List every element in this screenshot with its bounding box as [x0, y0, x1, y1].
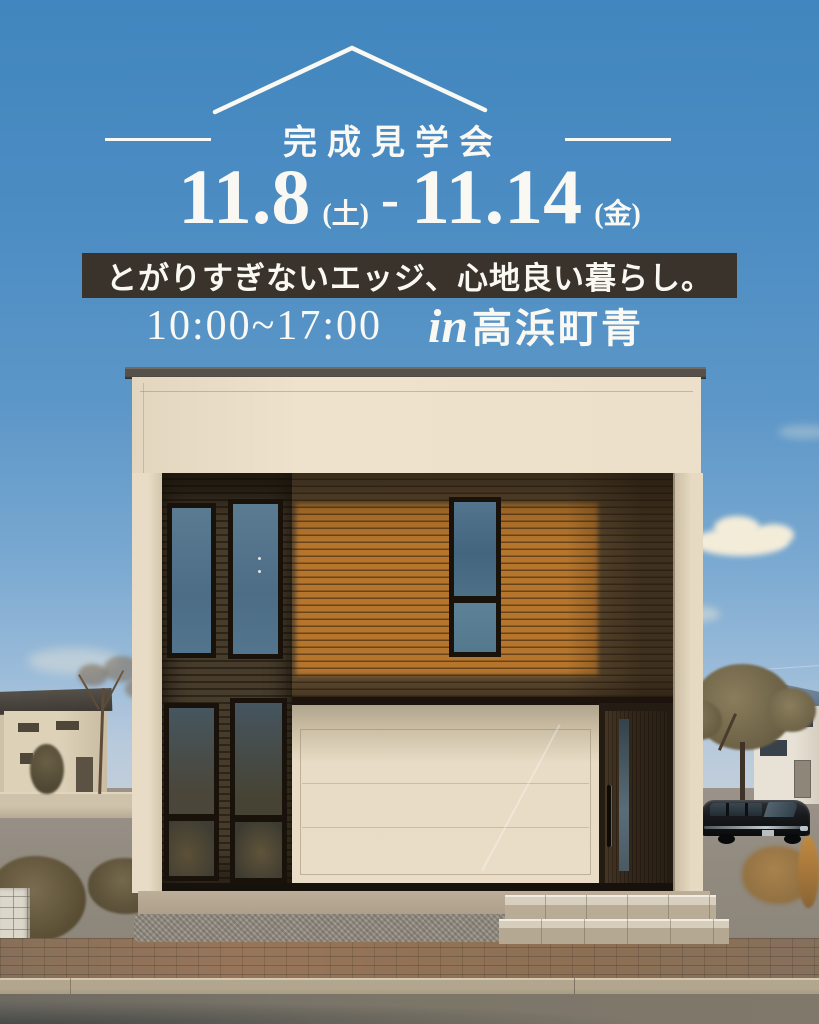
- roof-outline-icon: [205, 42, 495, 118]
- entry-step-lower: [499, 919, 729, 944]
- date-start: 11.8: [178, 158, 310, 236]
- date-row: 11.8 (土) - 11.14 (金): [0, 158, 819, 236]
- tagline-banner: とがりすぎないエッジ、心地良い暮らし。: [82, 253, 737, 298]
- garage-seam: [302, 783, 589, 784]
- left-pillar: [132, 473, 164, 893]
- facade-recess: [162, 473, 673, 893]
- window-center-top-glass: [454, 502, 496, 596]
- window-lower-left-b: [230, 698, 287, 883]
- entry-door-unit: [599, 703, 673, 883]
- window-upper-left-a-glass: [172, 508, 211, 653]
- window-lower-left-b-top-glass: [235, 703, 282, 815]
- date-end-day: (金): [594, 192, 641, 232]
- right-pillar: [673, 473, 703, 893]
- window-upper-left-b-glass: [233, 504, 278, 654]
- window-upper-left-b: [228, 499, 283, 659]
- entry-door-handle: [607, 785, 611, 847]
- gravel-strip: [134, 914, 516, 942]
- location: in 高浜町青: [428, 296, 644, 354]
- window-center-bottom-glass: [454, 603, 496, 652]
- upper-facade-wall: [132, 377, 701, 476]
- window-lower-left-a-top-glass: [169, 708, 214, 814]
- date-end: 11.14: [411, 158, 582, 236]
- tagline-text: とがりすぎないエッジ、心地良い暮らし。: [106, 253, 713, 298]
- location-name: 高浜町青: [472, 296, 644, 354]
- location-prefix: in: [428, 299, 468, 354]
- garage-seam: [302, 827, 589, 828]
- entry-door-leaf: [605, 711, 667, 883]
- event-poster: 完成見学会 11.8 (土) - 11.14 (金) とがりすぎないエッジ、心地…: [0, 0, 819, 1024]
- title-divider-right: [565, 138, 671, 141]
- title-divider-left: [105, 138, 211, 141]
- window-lower-left-a: [164, 703, 219, 881]
- window-latch-dots: [258, 557, 261, 560]
- wall-seam: [140, 391, 693, 392]
- open-hours: 10:00~17:00: [146, 302, 382, 350]
- window-upper-left-a: [167, 503, 216, 658]
- window-lower-left-b-bottom-glass: [235, 822, 282, 878]
- wall-seam-vertical: [143, 383, 144, 474]
- entry-step-upper: [505, 895, 716, 922]
- window-center: [449, 497, 501, 657]
- entry-door-glass-slit: [619, 719, 629, 871]
- garage-wall: [292, 705, 599, 883]
- garage-panel-outline: [300, 729, 591, 875]
- window-lower-left-a-bottom-glass: [169, 821, 214, 876]
- date-separator: -: [381, 168, 399, 230]
- date-start-day: (土): [322, 192, 369, 232]
